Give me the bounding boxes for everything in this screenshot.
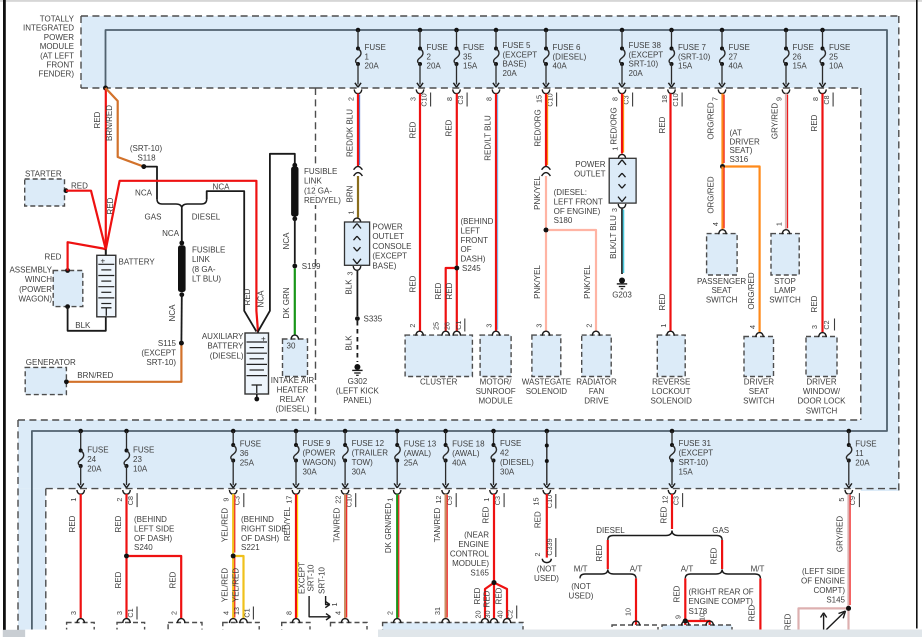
- svg-text:C1: C1: [242, 608, 251, 617]
- svg-text:26: 26: [793, 52, 802, 61]
- svg-text:(AWAL): (AWAL): [452, 449, 480, 458]
- svg-text:FRONT: FRONT: [46, 61, 74, 70]
- svg-text:2: 2: [408, 324, 417, 328]
- svg-text:FAN: FAN: [589, 387, 605, 396]
- svg-text:PNK/YEL: PNK/YEL: [533, 265, 542, 299]
- svg-text:BLK/LT BLU: BLK/LT BLU: [609, 215, 618, 259]
- svg-text:TAN/RED: TAN/RED: [433, 508, 442, 543]
- svg-text:SOLENOID: SOLENOID: [526, 387, 568, 396]
- svg-text:ASSEMBLY: ASSEMBLY: [9, 266, 52, 275]
- svg-text:5: 5: [837, 498, 846, 502]
- svg-text:FUSE: FUSE: [855, 439, 876, 448]
- svg-text:BATTERY: BATTERY: [119, 258, 156, 267]
- svg-text:RED: RED: [533, 511, 542, 528]
- svg-text:15A: 15A: [678, 62, 693, 71]
- svg-text:G203: G203: [612, 291, 632, 300]
- svg-text:RED: RED: [784, 613, 793, 630]
- svg-text:1: 1: [365, 52, 370, 61]
- svg-text:RED: RED: [169, 571, 178, 588]
- svg-text:4: 4: [711, 222, 720, 226]
- svg-text:RED: RED: [673, 585, 682, 602]
- svg-text:(DIESEL:: (DIESEL:: [554, 188, 587, 197]
- svg-text:M/T: M/T: [751, 565, 765, 574]
- svg-text:DRIVER: DRIVER: [806, 378, 836, 387]
- svg-text:9: 9: [222, 498, 231, 502]
- svg-text:S115: S115: [158, 339, 177, 348]
- svg-text:2: 2: [533, 553, 542, 557]
- svg-text:(LEFT SIDE: (LEFT SIDE: [802, 567, 845, 576]
- svg-text:20A: 20A: [365, 62, 380, 71]
- svg-text:USED): USED): [569, 592, 594, 601]
- svg-text:NCA: NCA: [213, 183, 231, 192]
- svg-text:(BEHIND: (BEHIND: [241, 515, 274, 524]
- svg-text:9: 9: [673, 615, 682, 619]
- svg-text:TOTALLY: TOTALLY: [40, 15, 75, 24]
- svg-text:FUSE 18: FUSE 18: [452, 439, 485, 448]
- svg-text:20A: 20A: [503, 69, 518, 78]
- svg-text:FUSE: FUSE: [87, 446, 108, 455]
- svg-text:BLK: BLK: [345, 335, 354, 351]
- svg-text:(POWER: (POWER: [19, 285, 52, 294]
- svg-text:40A: 40A: [452, 458, 467, 467]
- svg-text:20A: 20A: [87, 465, 102, 474]
- svg-text:7: 7: [710, 97, 719, 101]
- svg-text:SWITCH: SWITCH: [806, 406, 838, 415]
- svg-text:FUSE: FUSE: [793, 43, 814, 52]
- svg-text:3: 3: [534, 324, 543, 328]
- svg-text:S221: S221: [241, 543, 260, 552]
- svg-text:RED: RED: [658, 116, 667, 133]
- svg-text:PNK/YEL: PNK/YEL: [533, 176, 542, 210]
- svg-text:USED): USED): [534, 574, 559, 583]
- svg-text:ORG/RED: ORG/RED: [707, 102, 716, 140]
- svg-text:(NEAR: (NEAR: [464, 531, 489, 540]
- svg-text:1: 1: [610, 147, 619, 151]
- svg-text:2: 2: [427, 52, 432, 61]
- svg-text:WAGON): WAGON): [19, 295, 53, 304]
- svg-text:ORG/RED: ORG/RED: [706, 176, 715, 214]
- svg-text:RED: RED: [408, 121, 417, 138]
- svg-text:PASSENGER: PASSENGER: [697, 277, 746, 286]
- svg-text:FUSE 13: FUSE 13: [404, 439, 437, 448]
- svg-text:OUTLET: OUTLET: [372, 232, 404, 241]
- svg-text:FUSE 5: FUSE 5: [503, 41, 532, 50]
- svg-text:LINK: LINK: [192, 255, 210, 264]
- svg-text:OF: OF: [461, 245, 472, 254]
- svg-text:MOTOR/: MOTOR/: [480, 378, 513, 387]
- svg-text:(EXCEPT: (EXCEPT: [679, 449, 714, 458]
- svg-text:LAMP: LAMP: [774, 286, 796, 295]
- svg-text:RADIATOR: RADIATOR: [576, 378, 617, 387]
- svg-text:(AT LEFT: (AT LEFT: [40, 51, 74, 60]
- svg-text:YEL/RED: YEL/RED: [221, 508, 230, 542]
- svg-text:LINK: LINK: [304, 177, 322, 186]
- svg-text:SOLENOID: SOLENOID: [651, 397, 693, 406]
- svg-text:POWER: POWER: [575, 160, 605, 169]
- svg-text:G302: G302: [348, 377, 368, 386]
- svg-text:POWER: POWER: [372, 223, 402, 232]
- svg-text:12: 12: [660, 496, 669, 504]
- svg-text:15A: 15A: [463, 62, 478, 71]
- svg-text:(NOT: (NOT: [537, 565, 557, 574]
- svg-text:WINCH: WINCH: [25, 275, 52, 284]
- svg-text:SWITCH: SWITCH: [706, 295, 738, 304]
- svg-text:DRIVE: DRIVE: [584, 397, 608, 406]
- svg-text:S165: S165: [470, 569, 489, 578]
- svg-text:FUSE: FUSE: [240, 439, 261, 448]
- svg-text:22: 22: [334, 496, 343, 504]
- svg-text:WINDOW/: WINDOW/: [803, 387, 841, 396]
- svg-text:(NOT: (NOT: [571, 582, 591, 591]
- svg-text:8: 8: [284, 611, 293, 615]
- svg-text:S335: S335: [364, 315, 383, 324]
- svg-text:+: +: [261, 335, 266, 344]
- svg-text:LEFT SIDE: LEFT SIDE: [134, 524, 174, 533]
- svg-text:COMPT): COMPT): [813, 586, 845, 595]
- svg-text:40: 40: [495, 611, 504, 619]
- svg-text:POWER: POWER: [44, 33, 74, 42]
- svg-text:4: 4: [222, 611, 231, 615]
- svg-text:SEAT: SEAT: [711, 286, 731, 295]
- svg-text:EXCEPT: EXCEPT: [298, 562, 307, 594]
- svg-text:MODULE): MODULE): [452, 559, 489, 568]
- svg-text:30A: 30A: [500, 468, 515, 477]
- svg-text:RED: RED: [243, 288, 252, 305]
- svg-text:15: 15: [534, 95, 543, 103]
- svg-text:WASTEGATE: WASTEGATE: [522, 378, 571, 387]
- svg-text:15A: 15A: [679, 468, 694, 477]
- svg-text:(DIESEL): (DIESEL): [276, 405, 310, 414]
- svg-text:42: 42: [500, 449, 509, 458]
- svg-text:S118: S118: [137, 154, 156, 163]
- svg-text:1: 1: [386, 498, 395, 502]
- svg-text:FUSE: FUSE: [729, 43, 750, 52]
- svg-text:4: 4: [748, 325, 757, 329]
- svg-text:RED/ORG: RED/ORG: [610, 107, 619, 144]
- svg-text:3: 3: [115, 611, 124, 615]
- svg-text:A/T: A/T: [681, 565, 694, 574]
- svg-text:1: 1: [482, 498, 491, 502]
- svg-text:(BEHIND: (BEHIND: [134, 515, 167, 524]
- svg-text:(RIGHT REAR OF: (RIGHT REAR OF: [689, 588, 754, 597]
- svg-text:BLK: BLK: [75, 321, 91, 330]
- svg-text:RED/YEL): RED/YEL): [304, 196, 341, 205]
- svg-text:(DIESEL): (DIESEL): [210, 351, 244, 360]
- svg-text:SRT-10: SRT-10: [306, 564, 315, 592]
- svg-text:(BEHIND: (BEHIND: [461, 217, 494, 226]
- svg-text:8: 8: [445, 97, 454, 101]
- svg-text:RED: RED: [810, 114, 819, 131]
- svg-text:25: 25: [829, 52, 838, 61]
- svg-text:RED: RED: [473, 587, 482, 604]
- svg-text:DRIVER: DRIVER: [730, 137, 760, 146]
- svg-text:36: 36: [240, 449, 249, 458]
- svg-text:FRONT: FRONT: [461, 236, 489, 245]
- svg-text:RED: RED: [482, 590, 491, 607]
- svg-text:RED: RED: [68, 515, 77, 532]
- svg-text:10A: 10A: [829, 62, 844, 71]
- svg-text:YEL/RED: YEL/RED: [231, 568, 240, 602]
- svg-text:INTAKE AIR: INTAKE AIR: [271, 376, 315, 385]
- svg-text:(EXCEPT: (EXCEPT: [141, 349, 176, 358]
- svg-text:25A: 25A: [240, 458, 255, 467]
- svg-text:RED: RED: [445, 282, 454, 299]
- svg-text:WAGON): WAGON): [303, 458, 337, 467]
- svg-text:8: 8: [610, 97, 619, 101]
- svg-text:FUSE 38: FUSE 38: [629, 41, 662, 50]
- svg-text:(EXCEPT: (EXCEPT: [503, 50, 538, 59]
- svg-text:15: 15: [532, 498, 541, 506]
- svg-text:2: 2: [386, 611, 395, 615]
- svg-text:30A: 30A: [303, 468, 318, 477]
- svg-text:31: 31: [433, 607, 442, 615]
- svg-text:30: 30: [483, 611, 492, 619]
- svg-text:DK GRN: DK GRN: [282, 287, 291, 318]
- svg-text:DIESEL: DIESEL: [192, 213, 221, 222]
- svg-text:LOCKOUT: LOCKOUT: [652, 387, 691, 396]
- svg-text:3: 3: [810, 325, 819, 329]
- svg-text:S316: S316: [730, 155, 749, 164]
- svg-text:DRIVER: DRIVER: [744, 378, 774, 387]
- svg-text:FUSE: FUSE: [500, 439, 521, 448]
- svg-text:NCA: NCA: [257, 290, 266, 308]
- svg-text:27: 27: [729, 52, 738, 61]
- svg-text:ENGINE: ENGINE: [458, 540, 489, 549]
- svg-text:A/T: A/T: [630, 565, 643, 574]
- svg-text:YEL/RED: YEL/RED: [221, 568, 230, 602]
- svg-text:SEAT): SEAT): [730, 146, 753, 155]
- svg-text:RED: RED: [434, 282, 443, 299]
- svg-text:RED/ORG: RED/ORG: [534, 109, 543, 146]
- svg-text:PNK/YEL: PNK/YEL: [583, 265, 592, 299]
- svg-text:(POWER: (POWER: [303, 449, 336, 458]
- svg-text:NCA: NCA: [135, 189, 153, 198]
- svg-text:RIGHT SIDE: RIGHT SIDE: [241, 524, 287, 533]
- svg-text:8: 8: [811, 97, 820, 101]
- svg-text:TAN/RED: TAN/RED: [333, 508, 342, 543]
- svg-text:30A: 30A: [352, 468, 367, 477]
- svg-text:CLUSTER: CLUSTER: [420, 378, 458, 387]
- svg-text:NCA: NCA: [282, 232, 291, 250]
- svg-text:GAS: GAS: [145, 213, 162, 222]
- svg-text:FUSE 6: FUSE 6: [553, 43, 582, 52]
- svg-text:FUSE 12: FUSE 12: [352, 439, 385, 448]
- svg-text:BASE): BASE): [372, 261, 396, 270]
- svg-text:CONTROL: CONTROL: [450, 550, 490, 559]
- svg-text:C10: C10: [671, 93, 680, 106]
- svg-text:3: 3: [345, 272, 354, 276]
- svg-text:TOW): TOW): [352, 458, 374, 467]
- svg-text:FUSE: FUSE: [829, 43, 850, 52]
- svg-text:C339: C339: [545, 538, 554, 555]
- svg-text:RED/DK BLU: RED/DK BLU: [345, 109, 354, 157]
- svg-text:FENDER): FENDER): [38, 70, 74, 79]
- svg-text:(AT: (AT: [730, 129, 742, 138]
- svg-text:S199: S199: [302, 262, 321, 271]
- svg-text:(DIESEL): (DIESEL): [553, 52, 587, 61]
- svg-text:FUSE: FUSE: [463, 43, 484, 52]
- svg-text:(AWAL): (AWAL): [404, 449, 432, 458]
- svg-text:SRT-10): SRT-10): [146, 358, 176, 367]
- svg-text:20A: 20A: [855, 458, 870, 467]
- svg-text:2: 2: [115, 498, 124, 502]
- svg-text:(EXCEPT: (EXCEPT: [372, 252, 407, 261]
- svg-text:2: 2: [346, 97, 355, 101]
- svg-text:(LEFT KICK: (LEFT KICK: [336, 387, 380, 396]
- svg-text:3: 3: [484, 324, 493, 328]
- svg-text:RED: RED: [658, 293, 667, 310]
- svg-text:(DIESEL): (DIESEL): [500, 458, 534, 467]
- svg-text:S245: S245: [462, 264, 481, 273]
- svg-text:PANEL): PANEL): [343, 396, 372, 405]
- svg-text:RED: RED: [408, 275, 417, 292]
- svg-text:DASH): DASH): [461, 255, 486, 264]
- svg-text:SWITCH: SWITCH: [769, 295, 801, 304]
- svg-text:BRN: BRN: [345, 185, 354, 202]
- svg-text:3: 3: [610, 208, 619, 212]
- svg-text:SEAT: SEAT: [749, 387, 769, 396]
- svg-text:10A: 10A: [133, 465, 148, 474]
- svg-text:+: +: [101, 257, 106, 266]
- svg-text:1: 1: [659, 324, 668, 328]
- svg-text:SWITCH: SWITCH: [743, 397, 775, 406]
- svg-text:40A: 40A: [553, 62, 568, 71]
- svg-text:BLK: BLK: [345, 279, 354, 295]
- svg-text:FUSE 9: FUSE 9: [303, 439, 332, 448]
- svg-text:11: 11: [855, 449, 864, 458]
- svg-text:SRT-10): SRT-10): [679, 458, 709, 467]
- svg-text:RED: RED: [810, 295, 819, 312]
- svg-text:INTEGRATED: INTEGRATED: [23, 24, 74, 33]
- svg-text:2: 2: [584, 324, 593, 328]
- svg-text:1: 1: [346, 211, 355, 215]
- svg-text:(SRT-10): (SRT-10): [678, 52, 711, 61]
- svg-text:DK GRN/RED: DK GRN/RED: [384, 503, 393, 553]
- svg-text:RELAY: RELAY: [280, 395, 306, 404]
- svg-text:8: 8: [484, 97, 493, 101]
- svg-text:RED: RED: [114, 515, 123, 532]
- svg-text:S180: S180: [554, 216, 573, 225]
- svg-text:HEATER: HEATER: [277, 386, 309, 395]
- svg-text:BRN/RED: BRN/RED: [77, 371, 113, 380]
- svg-text:RED/YEL: RED/YEL: [283, 506, 292, 541]
- svg-text:OF DASH): OF DASH): [134, 534, 173, 543]
- svg-text:RED: RED: [114, 571, 123, 588]
- svg-text:GRY/RED: GRY/RED: [835, 516, 844, 553]
- svg-text:FUSE 31: FUSE 31: [679, 439, 712, 448]
- svg-text:OF ENGINE): OF ENGINE): [554, 207, 601, 216]
- svg-text:30: 30: [287, 342, 296, 351]
- svg-text:FUSIBLE: FUSIBLE: [304, 167, 337, 176]
- svg-text:25A: 25A: [404, 458, 419, 467]
- svg-text:RED: RED: [748, 604, 757, 621]
- svg-text:ENGINE COMPT): ENGINE COMPT): [689, 597, 754, 606]
- svg-text:C1: C1: [126, 608, 135, 617]
- svg-text:OUTLET: OUTLET: [574, 170, 606, 179]
- svg-text:GRY/RED: GRY/RED: [770, 103, 779, 140]
- svg-text:RED: RED: [93, 111, 102, 128]
- svg-text:M/T: M/T: [574, 565, 588, 574]
- svg-text:35: 35: [463, 52, 472, 61]
- svg-text:C1: C1: [454, 321, 463, 330]
- svg-text:4: 4: [334, 611, 343, 615]
- svg-text:AUXILIARY: AUXILIARY: [202, 332, 244, 341]
- svg-text:10: 10: [624, 608, 633, 616]
- svg-text:FUSE 7: FUSE 7: [678, 43, 707, 52]
- svg-text:NCA: NCA: [168, 304, 177, 322]
- svg-text:C2: C2: [506, 610, 515, 619]
- svg-text:10: 10: [698, 613, 707, 621]
- svg-text:RED: RED: [482, 506, 491, 523]
- svg-text:(EXCEPT: (EXCEPT: [629, 50, 664, 59]
- svg-text:GAS: GAS: [712, 526, 729, 535]
- svg-text:23: 23: [133, 455, 142, 464]
- svg-text:20A: 20A: [427, 62, 442, 71]
- svg-text:RED: RED: [45, 253, 62, 262]
- svg-text:RED: RED: [709, 547, 718, 564]
- svg-text:S240: S240: [134, 543, 153, 552]
- svg-text:12: 12: [434, 496, 443, 504]
- svg-text:GENERATOR: GENERATOR: [26, 358, 76, 367]
- svg-text:20A: 20A: [629, 69, 644, 78]
- svg-text:REVERSE: REVERSE: [652, 378, 690, 387]
- svg-text:DIESEL: DIESEL: [596, 526, 625, 535]
- svg-text:FUSE: FUSE: [133, 446, 154, 455]
- svg-text:C2: C2: [822, 320, 831, 329]
- svg-text:RED: RED: [495, 587, 504, 604]
- svg-text:FUSE: FUSE: [365, 43, 386, 52]
- svg-text:RED: RED: [659, 506, 668, 523]
- svg-text:15A: 15A: [793, 62, 808, 71]
- svg-text:LEFT FRONT: LEFT FRONT: [554, 197, 603, 206]
- svg-text:3: 3: [69, 611, 78, 615]
- svg-text:NCA: NCA: [162, 229, 180, 238]
- svg-text:STOP: STOP: [774, 277, 796, 286]
- svg-text:BATTERY: BATTERY: [207, 342, 244, 351]
- svg-text:RED: RED: [71, 182, 88, 191]
- svg-text:RED/LT BLU: RED/LT BLU: [484, 115, 493, 161]
- svg-text:20: 20: [473, 611, 482, 619]
- svg-text:FUSE: FUSE: [427, 43, 448, 52]
- svg-text:25: 25: [432, 322, 441, 330]
- svg-text:SRT-10): SRT-10): [629, 60, 659, 69]
- svg-text:(12 GA-: (12 GA-: [304, 186, 332, 195]
- svg-text:CONSOLE: CONSOLE: [372, 242, 411, 251]
- svg-text:(TRAILER: (TRAILER: [352, 449, 389, 458]
- svg-text:SRT-10: SRT-10: [317, 566, 326, 594]
- svg-text:13: 13: [232, 607, 241, 615]
- svg-text:LEFT: LEFT: [461, 226, 481, 235]
- svg-text:9: 9: [774, 97, 783, 101]
- svg-text:26: 26: [443, 322, 452, 330]
- svg-text:2: 2: [170, 611, 179, 615]
- svg-text:MODULE: MODULE: [40, 42, 74, 51]
- svg-text:RED: RED: [445, 119, 454, 136]
- svg-text:S145: S145: [826, 596, 845, 605]
- svg-text:ORG/RED: ORG/RED: [747, 272, 756, 310]
- svg-text:OF DASH): OF DASH): [241, 534, 280, 543]
- svg-text:17: 17: [284, 496, 293, 504]
- svg-text:1: 1: [330, 603, 339, 607]
- svg-text:MODULE: MODULE: [478, 397, 512, 406]
- svg-text:OF ENGINE: OF ENGINE: [801, 577, 845, 586]
- svg-text:FUSIBLE: FUSIBLE: [192, 246, 225, 255]
- svg-text:(SRT-10): (SRT-10): [130, 144, 163, 153]
- svg-text:RED: RED: [595, 544, 604, 561]
- svg-text:40A: 40A: [729, 62, 744, 71]
- svg-text:SUNROOF: SUNROOF: [476, 387, 516, 396]
- svg-text:BRN/RED: BRN/RED: [105, 105, 114, 141]
